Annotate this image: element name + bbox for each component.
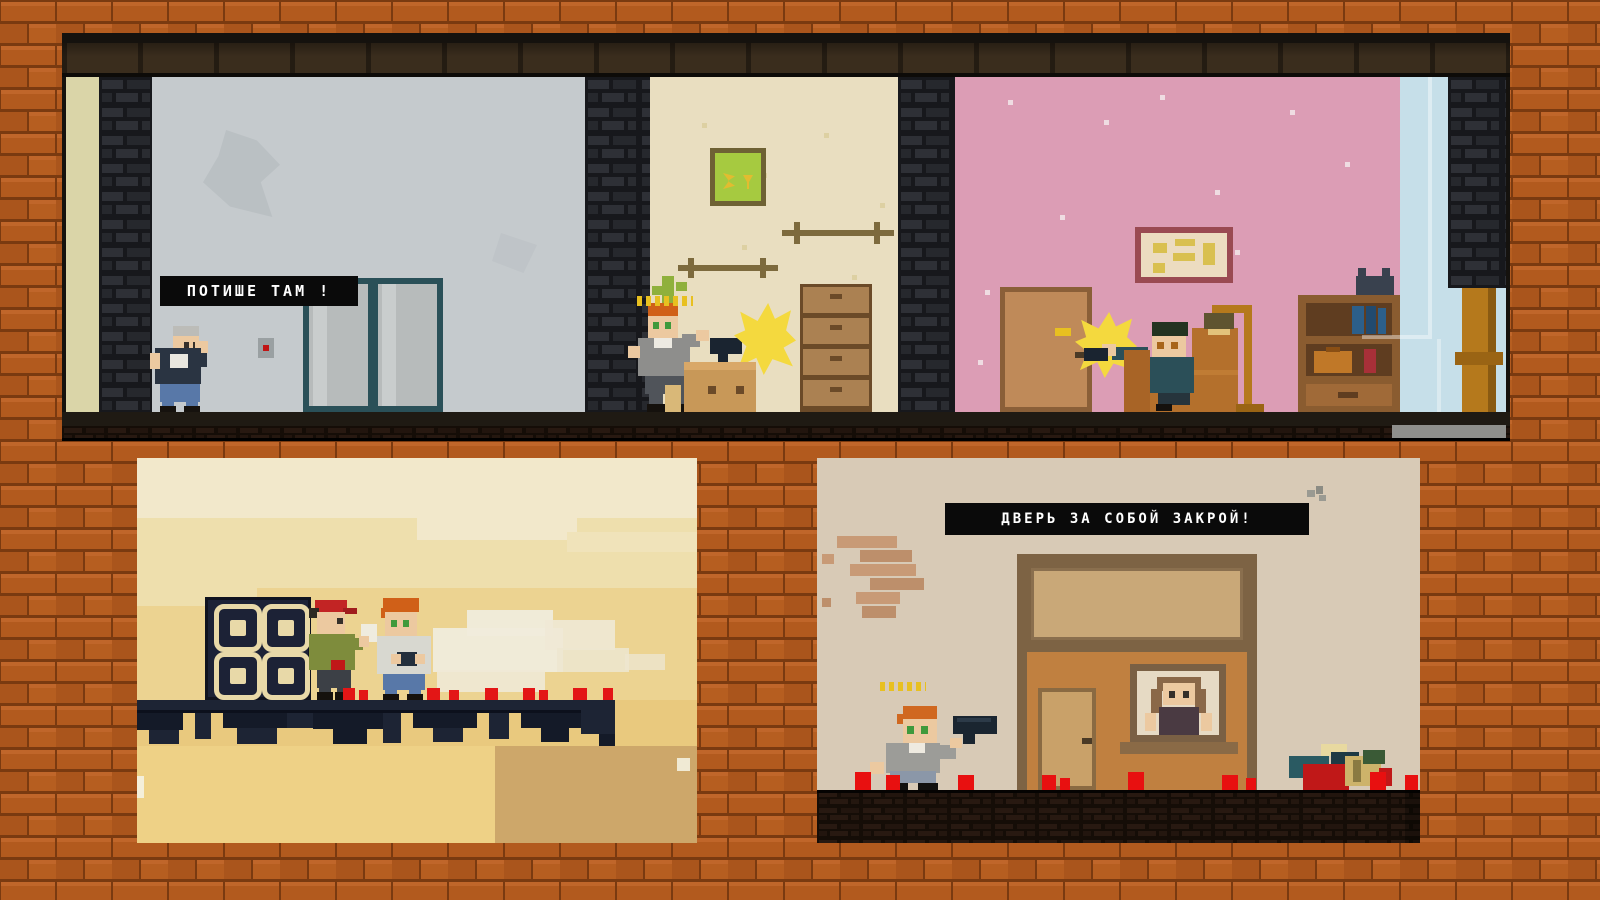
scaffold-block [287,713,313,728]
cat[interactable] [1356,268,1394,295]
suitcase-handle [1326,347,1340,352]
panel-right-shade [1405,790,1420,843]
hand [359,636,369,647]
scaffold-block [383,713,401,743]
speech-bubble: ПОТИШЕ ТАМ ! [160,276,358,306]
floor-lamp [1204,305,1274,412]
red-cap-character[interactable] [305,598,365,700]
sunset-sky-step [417,518,577,540]
drawer [803,349,869,375]
drawer-handle [830,294,842,299]
wall-dot [1215,190,1220,195]
pistol [1084,348,1108,361]
cardboard-box [665,385,681,412]
window-sill [1120,742,1238,754]
speaker-stack[interactable] [205,597,311,700]
house-window[interactable] [1130,664,1226,742]
pistol-slide [957,718,991,722]
smoke-puff [545,620,615,650]
eye [907,726,914,734]
shooter-hand [628,346,640,358]
apartment-floor [62,412,1510,426]
sitting-hair [1152,322,1188,336]
window-person-face [1163,683,1195,705]
picture-motif [1153,243,1167,253]
chest-of-drawers[interactable] [800,284,872,412]
speech-bubble-text: ПОТИШЕ ТАМ ! [187,282,331,300]
lamp-light [1208,329,1230,335]
rod-end [688,258,694,278]
glass-streak [382,284,396,406]
pistol-grip [963,732,975,744]
brick-bit [856,592,900,604]
blood-spot [485,688,498,700]
picture-motif [1203,243,1215,265]
brick-bit [862,606,896,618]
drawer [803,287,869,313]
sitting-shooter-character[interactable] [1102,318,1202,414]
street-ground [817,790,1420,843]
debris-bit [1307,490,1315,497]
blood-spot [343,688,355,700]
lamp-arm [1212,305,1252,313]
drawer-handle [830,387,842,392]
window-person-body [1159,707,1199,735]
blood-spot [573,688,587,700]
panel-right-edge [1506,77,1510,412]
wall-dot [1160,95,1165,100]
blood-spot [427,688,440,700]
panel-street[interactable]: ДВЕРЬ ЗА СОБОЙ ЗАКРОЙ! [817,458,1420,843]
drain-pipe [1462,288,1496,412]
old-man-hair [173,326,199,336]
scaffold-block [521,713,581,728]
green-picture-frame [710,148,766,206]
scaffold-block [237,728,277,744]
scaffold-block [489,713,509,739]
rod-end [760,258,766,278]
hanging-brick-pillar [1448,77,1506,288]
smoke-cloud [433,606,673,698]
eye [403,620,409,627]
wall-speckle [702,123,707,128]
brick-pillar [99,77,152,412]
pants [317,670,351,688]
brick-bit [850,564,916,576]
game-collage: ПОТИШЕ ТАМ ! [0,0,1600,900]
floor-bricks [62,426,1510,438]
scaffold-block [581,700,615,734]
cat-body [1356,276,1394,295]
sitting-eye [1171,342,1178,349]
suitcase [1314,351,1352,373]
hand [950,738,962,748]
pistol [710,338,742,354]
sitting-eye [1157,342,1164,349]
blood-spot [1042,775,1056,790]
sitting-torso [1146,357,1194,393]
wall-dot [978,360,983,365]
house-sign-panel [1031,568,1243,640]
picture-motif [1175,239,1195,246]
lamp-pole [1244,305,1252,412]
drawer [803,318,869,344]
window-reflection [1437,339,1441,412]
shooter-eye [653,322,659,329]
window-reflection [1428,77,1432,339]
cabinet[interactable] [684,362,756,412]
swear-symbols [880,682,926,691]
bullet-tracer [1055,328,1071,336]
left-wall-strip [66,77,99,412]
eye [337,618,343,624]
blood-spot [523,688,535,700]
jeans [383,674,425,690]
lamp-shade [1204,313,1234,329]
panel-rooftop[interactable] [137,458,697,843]
brick-bit [860,550,912,562]
orange-hair-character[interactable] [373,596,437,700]
wall-picture-frame [1135,227,1233,283]
scaffold-block [333,729,367,744]
door-handle [1082,738,1092,744]
wall-dot [1235,250,1240,255]
cabinet-knob [708,386,716,394]
wall-speckle [824,133,829,138]
book [1366,306,1376,334]
window-reflection [1362,335,1428,339]
blood-spot [886,775,900,790]
interior-door[interactable] [1000,287,1092,412]
wall-dot [985,290,990,295]
collar [909,743,925,753]
sitting-shoe [1156,404,1172,411]
blood-spot [1222,775,1238,790]
lower-wall-left [137,746,495,843]
wall-speckle [852,275,857,280]
smoke-puff [467,610,553,636]
picture-motif [723,173,735,189]
window-person-hand [1145,713,1156,731]
pipe-flange [1455,352,1503,365]
scaffold-block [433,728,463,742]
shooter-shoe [647,404,665,412]
panel-apartment[interactable]: ПОТИШЕ ТАМ ! [62,33,1510,441]
exposed-bricks [822,536,937,626]
scaffold-block [223,713,295,728]
wall-chip [677,758,690,771]
smoke-puff [625,654,665,670]
picture-motif [1153,263,1165,273]
blood-spot [1370,772,1386,790]
blood-spot [1128,772,1144,790]
cabinet-top [684,362,756,370]
hand [870,762,884,774]
wall-debris [1307,486,1327,502]
book [1378,308,1386,334]
apartment-ceiling [62,43,1510,73]
wall-speckle [742,245,747,250]
corpse-blood [1303,764,1349,790]
smoke-puff [557,648,629,672]
hand [415,654,425,664]
debris-bit [1316,486,1323,494]
corpse-part [1363,750,1385,764]
speaker-cone [214,652,262,700]
wall-speckle [880,203,885,208]
hand [391,654,401,664]
blood-spot [359,690,368,700]
wall-chip [137,776,144,798]
old-man-hand [150,353,160,369]
drawer-handle [830,356,842,361]
scaffold-block [313,713,383,729]
scaffold-block [599,734,615,746]
brick-bit [822,554,834,564]
window-person-eye [1183,691,1189,698]
blood-spot [539,690,548,700]
panel-left-edge [62,77,66,412]
panel-bottom-edge [62,438,1510,441]
street-banner: ДВЕРЬ ЗА СОБОЙ ЗАКРОЙ! [945,503,1309,535]
lower-wall-right [495,746,697,843]
figurine [1364,349,1376,373]
drawer-handle [830,325,842,330]
blood-spot [603,688,613,700]
scaffold-block [137,713,183,730]
cabinet-knob [736,386,744,394]
scaffold-block [195,713,211,739]
old-man-jeans [160,384,200,402]
speaker-cone [262,652,310,700]
wall-button-light [263,345,269,351]
picture-motif [743,175,753,189]
shoe [918,783,938,790]
wall-dot [1290,110,1295,115]
drawer [803,380,869,406]
corpse-part [1353,760,1361,782]
face [385,612,417,636]
old-man-character[interactable] [150,316,212,412]
bookshelf[interactable] [1298,295,1400,412]
picture-motif [1173,253,1195,261]
street-banner-text: ДВЕРЬ ЗА СОБОЙ ЗАКРОЙ! [1001,511,1252,527]
eye [391,620,397,627]
scaffold-platform [137,700,615,713]
armchair-armrest [1124,350,1150,412]
debris-bit [1319,495,1326,501]
lamp-base [1236,404,1264,412]
speaker-cone [214,604,262,652]
book [1352,306,1364,334]
rod-end [794,222,800,244]
brick-bit [822,598,831,607]
sunset-sky-top [137,458,697,518]
sunset-sky-step [567,532,697,552]
shooter-eye [665,322,671,329]
scaffold-block [541,728,569,742]
ground-edge [817,790,1420,793]
blood-stain [331,660,345,670]
wall-button[interactable] [258,338,274,358]
house [1017,554,1257,790]
brick-bit [837,536,897,548]
scaffold-block [149,730,179,744]
blood-spot [1060,778,1070,790]
wall-dot [1104,120,1109,125]
brick-pillar [898,77,955,412]
swear-symbols [637,296,693,306]
blood-spot [1405,775,1418,790]
scaffold-block [413,713,477,728]
blood-spot [855,772,871,790]
shooter-hand [696,330,709,341]
speaker-cone [262,604,310,652]
shoe [317,692,333,700]
shooter-leg [649,394,663,404]
blood-spot [1246,778,1256,790]
wall-dot [1345,162,1350,167]
rod-end [874,222,880,244]
window-person-eye [1169,691,1175,698]
wall-dot [1060,215,1065,220]
brick-bit [870,578,924,590]
cap-brim [343,608,357,614]
hair [903,706,937,719]
shooter-collar [654,338,672,348]
curtain-rod [678,258,778,278]
drawer-handle [1338,392,1358,398]
window-person-hand [1201,713,1212,731]
curtain-rod [782,222,894,244]
wall-dot [1008,100,1013,105]
eye [921,726,928,734]
blood-spot [449,690,459,700]
old-man-shirt [170,354,188,368]
blood-spot [958,775,974,790]
floor-gray-bar [1392,425,1506,438]
